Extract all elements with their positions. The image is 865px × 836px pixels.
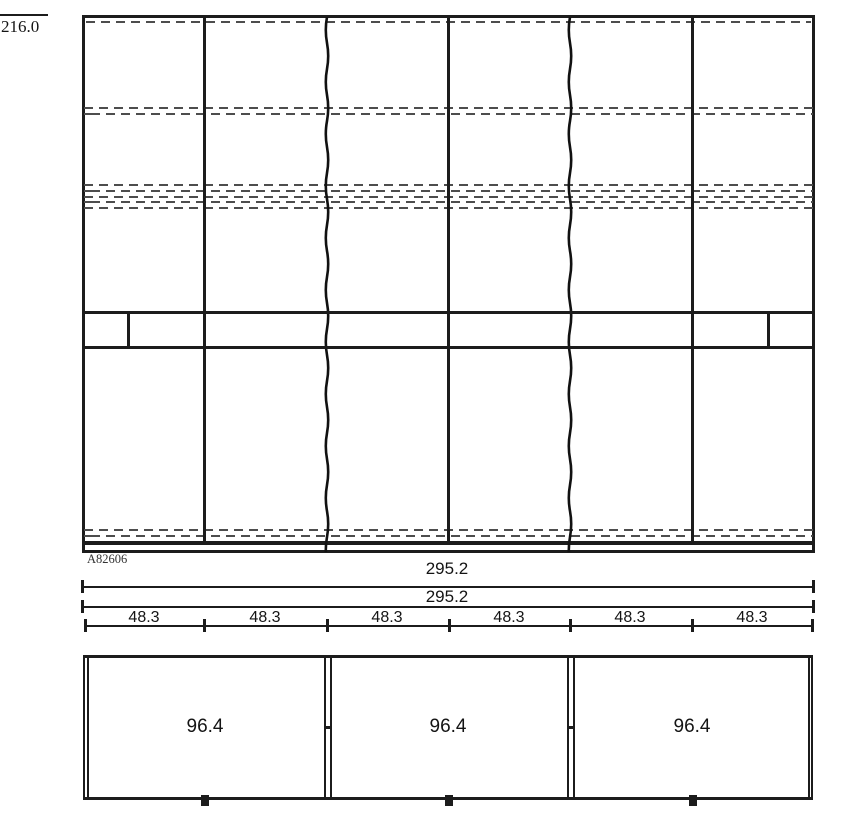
plan-width-label: 96.4 [408,717,488,737]
panel-divider [691,18,694,541]
drawer-band-right-divider [767,314,770,346]
dimension-tick [569,619,572,632]
plan-outline-right-inner [808,657,810,798]
plan-outline-right [811,655,813,800]
part-code-label: A82606 [87,552,127,567]
outline-bottom [82,541,815,545]
plinth-left-edge [82,544,85,553]
plan-width-label: 96.4 [652,717,732,737]
dimension-tick [448,619,451,632]
plan-outline-top [83,655,813,658]
plinth-right-edge [812,544,815,553]
dimension-end-tick [81,580,84,593]
technical-drawing-canvas: 216.0 [0,0,865,836]
dimension-tick [811,619,814,632]
plinth-line [84,550,813,553]
outline-right [812,15,815,544]
overall-width-label-1: 295.2 [407,560,487,578]
plan-divider-joint [324,726,332,729]
height-dimension-label: 216.0 [1,18,53,36]
plan-outline-left-inner [87,657,89,798]
plan-divider-joint [567,726,575,729]
dimension-end-tick [81,600,84,613]
plan-width-label: 96.4 [165,717,245,737]
drawer-band-bottom [82,346,815,349]
dimension-tick [691,619,694,632]
dimension-end-tick [812,580,815,593]
break-line-wavy [323,17,331,552]
outline-left [82,15,85,544]
overall-width-label-2: 295.2 [407,588,487,606]
panel-divider [203,18,206,541]
plan-connector-mark [689,795,697,806]
plan-connector-mark [201,795,209,806]
plan-connector-mark [445,795,453,806]
dimension-tick [84,619,87,632]
height-dimension-line [0,14,48,16]
dimension-tick [326,619,329,632]
dimension-end-tick [812,600,815,613]
drawer-band-top [82,311,815,314]
break-line-wavy [566,17,574,552]
panel-divider [447,18,450,541]
dimension-line [82,606,814,608]
plan-outline-left [83,655,85,800]
dimension-tick [203,619,206,632]
drawer-band-left-divider [127,314,130,346]
